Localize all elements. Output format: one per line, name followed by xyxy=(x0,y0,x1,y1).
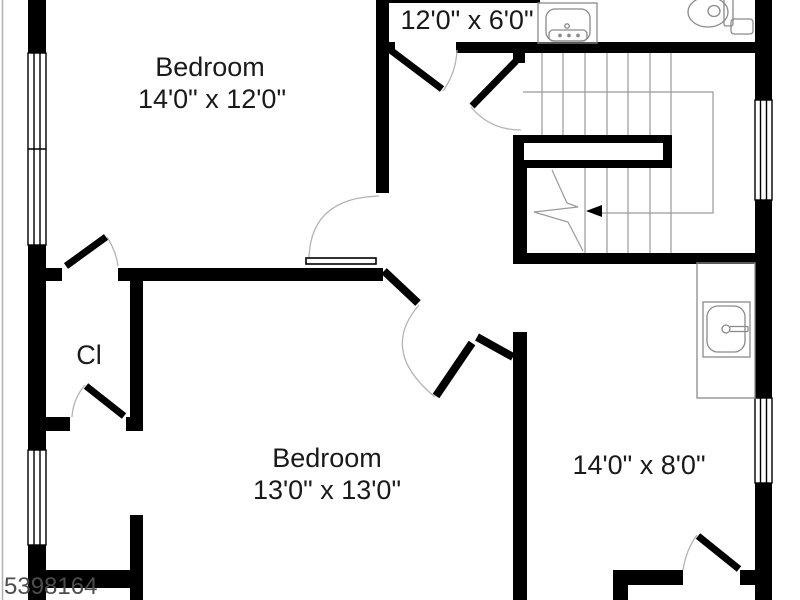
door-arc xyxy=(402,305,435,397)
counter xyxy=(697,263,755,398)
listing-watermark: 5398164 xyxy=(4,573,97,600)
door-leaf xyxy=(472,61,516,106)
sink-knob xyxy=(568,34,570,36)
wall-segment xyxy=(46,417,70,431)
door-leaf-open-flat xyxy=(306,258,376,264)
doors xyxy=(66,49,739,570)
sink-basin xyxy=(707,306,745,352)
door-arc xyxy=(443,50,457,91)
room-label-bedroom-top-dims: 14'0" x 12'0" xyxy=(138,84,286,114)
wall-segment xyxy=(613,570,628,600)
door-leaf xyxy=(698,536,739,569)
window xyxy=(755,398,772,483)
wall-segment xyxy=(28,245,46,450)
door-leaf xyxy=(384,271,418,303)
door-leaf xyxy=(436,343,472,396)
room-label-bedroom-top-name: Bedroom xyxy=(155,52,265,82)
window xyxy=(28,450,46,545)
wall-segment xyxy=(46,268,62,281)
door-arc xyxy=(72,385,85,417)
room-label-bedroom-bottom-name: Bedroom xyxy=(272,443,382,473)
door-leaf xyxy=(477,337,513,357)
door-leaf xyxy=(86,386,124,416)
room-label-closet: Cl xyxy=(76,340,102,370)
wall-segment xyxy=(126,417,143,431)
faucet-base xyxy=(722,325,730,333)
floor-plan: Bedroom 14'0" x 12'0" 12'0" x 6'0" Cl Be… xyxy=(0,0,800,600)
utility-sink-icon xyxy=(697,263,755,398)
wall-segment xyxy=(376,0,389,193)
door-leaves xyxy=(66,49,739,569)
toilet-icon xyxy=(688,0,753,34)
vanity-sink-icon xyxy=(538,3,597,43)
wall-segment xyxy=(118,268,383,281)
wall-segment xyxy=(130,515,143,600)
window xyxy=(755,100,772,200)
toilet-tank-side xyxy=(731,19,753,34)
floor-plan-drawing: Bedroom 14'0" x 12'0" 12'0" x 6'0" Cl Be… xyxy=(0,0,800,600)
stair-railing-inner xyxy=(524,143,663,160)
wall-segment xyxy=(513,332,527,600)
wall-segment xyxy=(755,200,772,398)
wall-segment xyxy=(387,0,540,3)
room-label-bedroom-bottom-dims: 13'0" x 13'0" xyxy=(253,475,401,505)
door-arc xyxy=(107,237,118,266)
room-label-bath-dims: 12'0" x 6'0" xyxy=(400,5,533,35)
wall-segment xyxy=(456,42,772,53)
door-arc xyxy=(683,535,697,570)
door-arc xyxy=(471,107,521,130)
sink-knob xyxy=(559,34,561,36)
stair-break-line xyxy=(534,170,583,251)
wall-segment xyxy=(740,570,772,585)
stair-direction-arrow xyxy=(586,205,602,217)
sink-drain xyxy=(565,24,569,28)
room-label-right-room-dims: 14'0" x 8'0" xyxy=(572,450,705,480)
wall-segment xyxy=(28,0,46,53)
sink-knob xyxy=(577,34,579,36)
toilet-drain xyxy=(708,6,720,17)
door-arc xyxy=(309,196,379,259)
wall-segment xyxy=(130,268,143,430)
door-leaf xyxy=(389,49,442,89)
door-leaf xyxy=(66,237,106,266)
